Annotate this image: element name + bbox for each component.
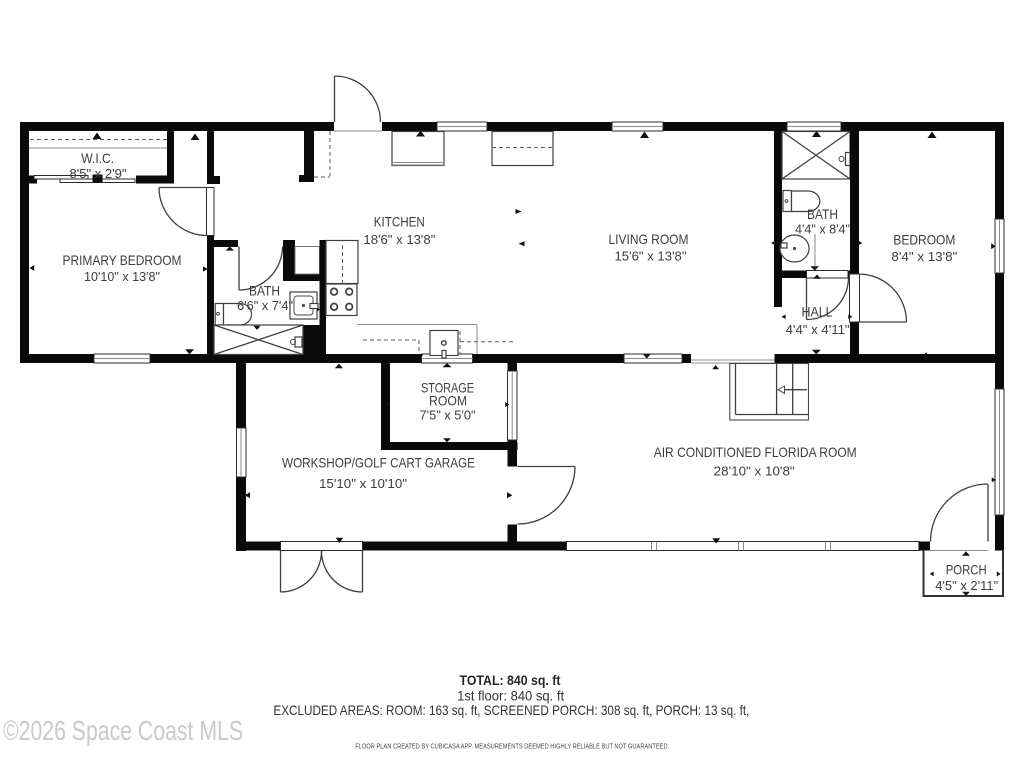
- svg-text:1st floor: 840 sq. ft: 1st floor: 840 sq. ft: [457, 689, 564, 704]
- svg-text:7'5" x 5'0": 7'5" x 5'0": [420, 408, 476, 423]
- svg-text:W.I.C.: W.I.C.: [81, 150, 114, 166]
- svg-text:TOTAL: 840 sq. ft: TOTAL: 840 sq. ft: [460, 672, 561, 688]
- svg-text:8'5" x 2'9": 8'5" x 2'9": [70, 166, 127, 181]
- svg-text:10'10" x 13'8": 10'10" x 13'8": [84, 269, 160, 284]
- svg-text:4'5" x 2'11": 4'5" x 2'11": [935, 578, 998, 593]
- svg-text:HALL: HALL: [802, 304, 833, 320]
- svg-text:EXCLUDED AREAS: ROOM: 163 sq.: EXCLUDED AREAS: ROOM: 163 sq. ft, SCREEN…: [273, 703, 749, 718]
- svg-text:AIR CONDITIONED FLORIDA ROOM: AIR CONDITIONED FLORIDA ROOM: [654, 444, 857, 460]
- svg-text:4'4" x 8'4": 4'4" x 8'4": [795, 222, 850, 237]
- svg-text:BATH: BATH: [249, 283, 280, 299]
- svg-text:PORCH: PORCH: [946, 562, 987, 578]
- svg-text:15'10" x 10'10": 15'10" x 10'10": [319, 476, 407, 491]
- svg-text:ROOM: ROOM: [429, 393, 467, 409]
- svg-text:6'6" x 7'4": 6'6" x 7'4": [237, 298, 293, 313]
- svg-text:©2026 Space Coast MLS: ©2026 Space Coast MLS: [3, 715, 243, 746]
- svg-text:8'4" x 13'8": 8'4" x 13'8": [891, 249, 957, 264]
- svg-text:18'6" x 13'8": 18'6" x 13'8": [363, 232, 435, 247]
- svg-text:15'6" x 13'8": 15'6" x 13'8": [615, 249, 687, 264]
- svg-text:WORKSHOP/GOLF CART GARAGE: WORKSHOP/GOLF CART GARAGE: [282, 455, 475, 471]
- svg-text:BATH: BATH: [807, 206, 838, 222]
- svg-text:PRIMARY BEDROOM: PRIMARY BEDROOM: [63, 252, 182, 268]
- svg-text:LIVING ROOM: LIVING ROOM: [609, 231, 689, 247]
- svg-text:28'10" x 10'8": 28'10" x 10'8": [714, 464, 795, 479]
- svg-text:FLOOR PLAN CREATED BY CUBICASA: FLOOR PLAN CREATED BY CUBICASA APP. MEAS…: [355, 742, 669, 751]
- svg-text:4'4" x 4'11": 4'4" x 4'11": [786, 322, 850, 337]
- svg-text:BEDROOM: BEDROOM: [893, 232, 955, 248]
- svg-text:KITCHEN: KITCHEN: [374, 214, 425, 230]
